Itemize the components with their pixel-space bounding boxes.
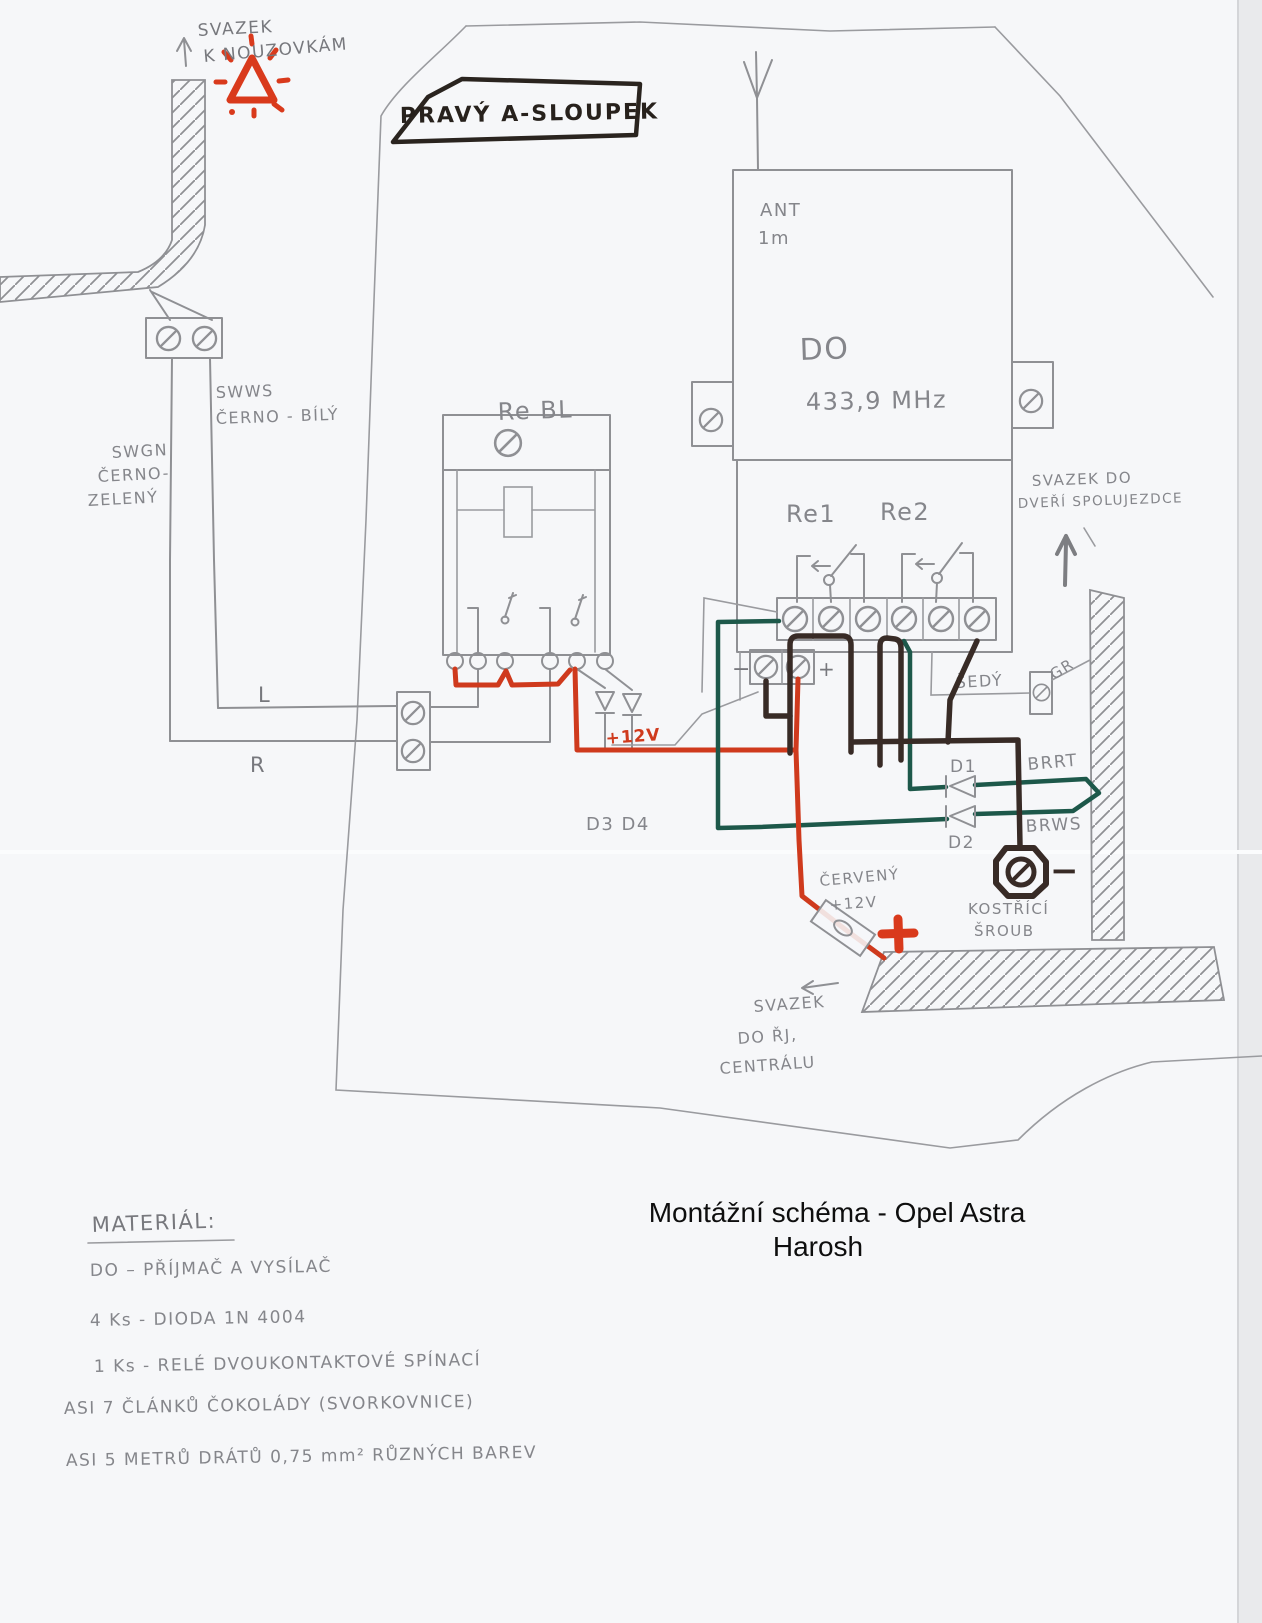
swgn-code-label: SWGN — [111, 440, 168, 462]
rebl-screw-icon — [495, 430, 521, 456]
ground-minus-sign: − — [1050, 851, 1079, 891]
ant-label: ANT — [760, 200, 801, 221]
wire-l-label: L — [258, 683, 271, 707]
kostrici-label-2: ŠROUB — [974, 921, 1035, 940]
plus12v-wire-label: +12V — [605, 725, 661, 749]
do-frequency-label: 433,9 MHz — [806, 386, 948, 416]
scanned-wiring-diagram: SVAZEK K NOUZOVKÁM PRAVÝ A-SLOUPEK SWWS … — [0, 0, 1262, 1623]
do-label: DO — [799, 331, 850, 368]
re1-label: Re1 — [786, 500, 836, 528]
re2-label: Re2 — [880, 498, 930, 526]
kostrici-label-1: KOSTŘÍCÍ — [968, 899, 1049, 918]
brws-label: BRWS — [1025, 814, 1082, 837]
d1-label: D1 — [950, 757, 977, 777]
power-minus-sign: − — [732, 657, 752, 682]
d2-label: D2 — [948, 833, 975, 853]
wire-r-label: R — [250, 753, 266, 777]
d3d4-label: D3 D4 — [586, 814, 650, 835]
ant-length-label: 1m — [758, 228, 790, 249]
power-plus-sign: + — [818, 657, 836, 681]
pravy-a-sloupek-label: PRAVÝ A-SLOUPEK — [400, 98, 660, 129]
rebl-label: Re BL — [497, 395, 573, 426]
sill-hatched-band — [862, 947, 1224, 1012]
swgn-color-label-1: ČERNO- — [97, 463, 170, 486]
materials-item-1: 4 Ks - DIODA 1N 4004 — [90, 1307, 307, 1331]
cerveny-12v-label: +12V — [829, 893, 878, 914]
swgn-color-label-2: ZELENÝ — [87, 487, 159, 510]
svazek-dvere-label-1: SVAZEK DO — [1032, 469, 1133, 490]
printed-title-line2: Harosh — [773, 1231, 863, 1262]
swws-code-label: SWWS — [215, 381, 274, 402]
door-pillar-hatched-strip — [1090, 590, 1124, 940]
svazek-k-nouzovkam-label-1: SVAZEK — [197, 17, 273, 41]
printed-title-line1: Montážní schéma - Opel Astra — [649, 1197, 1026, 1228]
materials-heading: MATERIÁL: — [91, 1208, 216, 1237]
